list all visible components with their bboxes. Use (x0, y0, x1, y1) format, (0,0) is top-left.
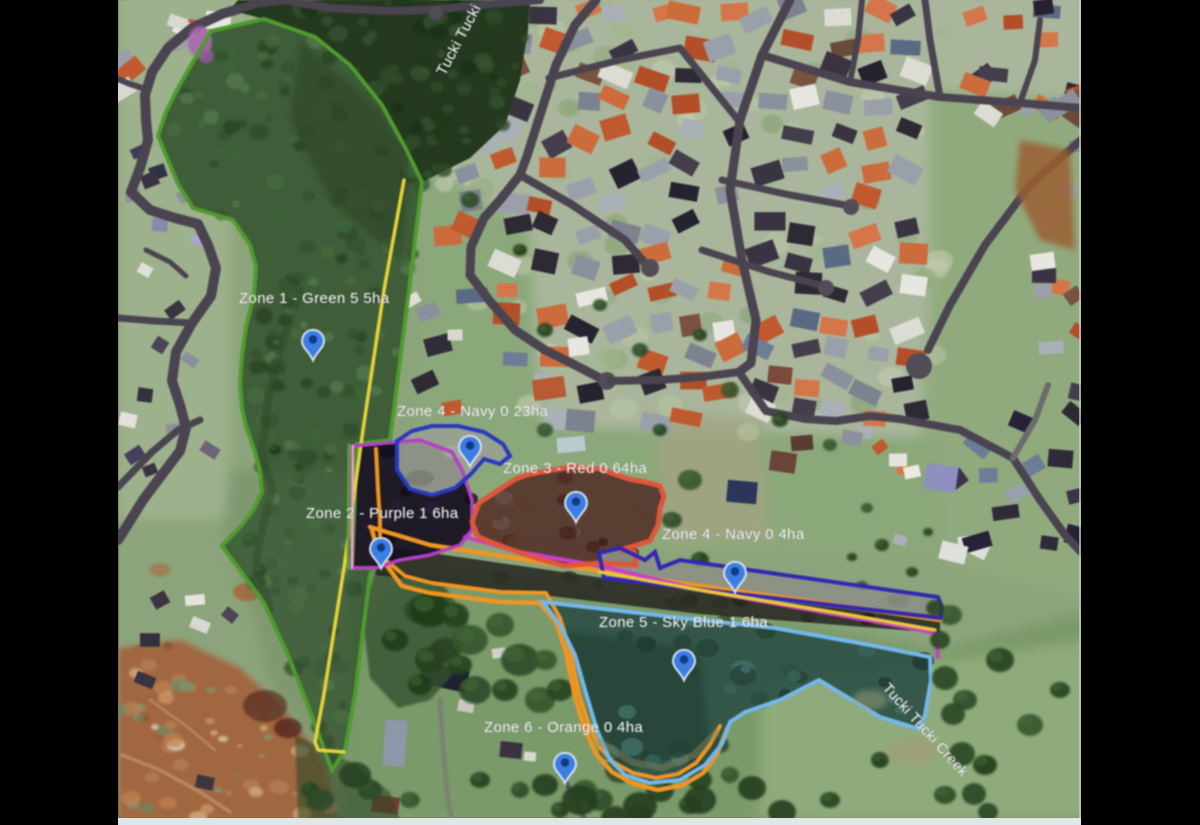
svg-text:Zone 5 - Sky Blue 1 6ha: Zone 5 - Sky Blue 1 6ha (599, 614, 768, 631)
svg-text:Zone 6 - Orange 0 4ha: Zone 6 - Orange 0 4ha (484, 719, 643, 736)
svg-text:Zone 3 - Red 0 64ha: Zone 3 - Red 0 64ha (503, 460, 648, 477)
svg-text:Zone 4 - Navy 0 23ha: Zone 4 - Navy 0 23ha (397, 403, 549, 420)
svg-text:Zone 1 - Green 5 5ha: Zone 1 - Green 5 5ha (239, 290, 390, 307)
svg-text:Zone 4 - Navy 0 4ha: Zone 4 - Navy 0 4ha (662, 526, 805, 543)
svg-text:Zone 2 - Purple 1 6ha: Zone 2 - Purple 1 6ha (306, 505, 459, 522)
